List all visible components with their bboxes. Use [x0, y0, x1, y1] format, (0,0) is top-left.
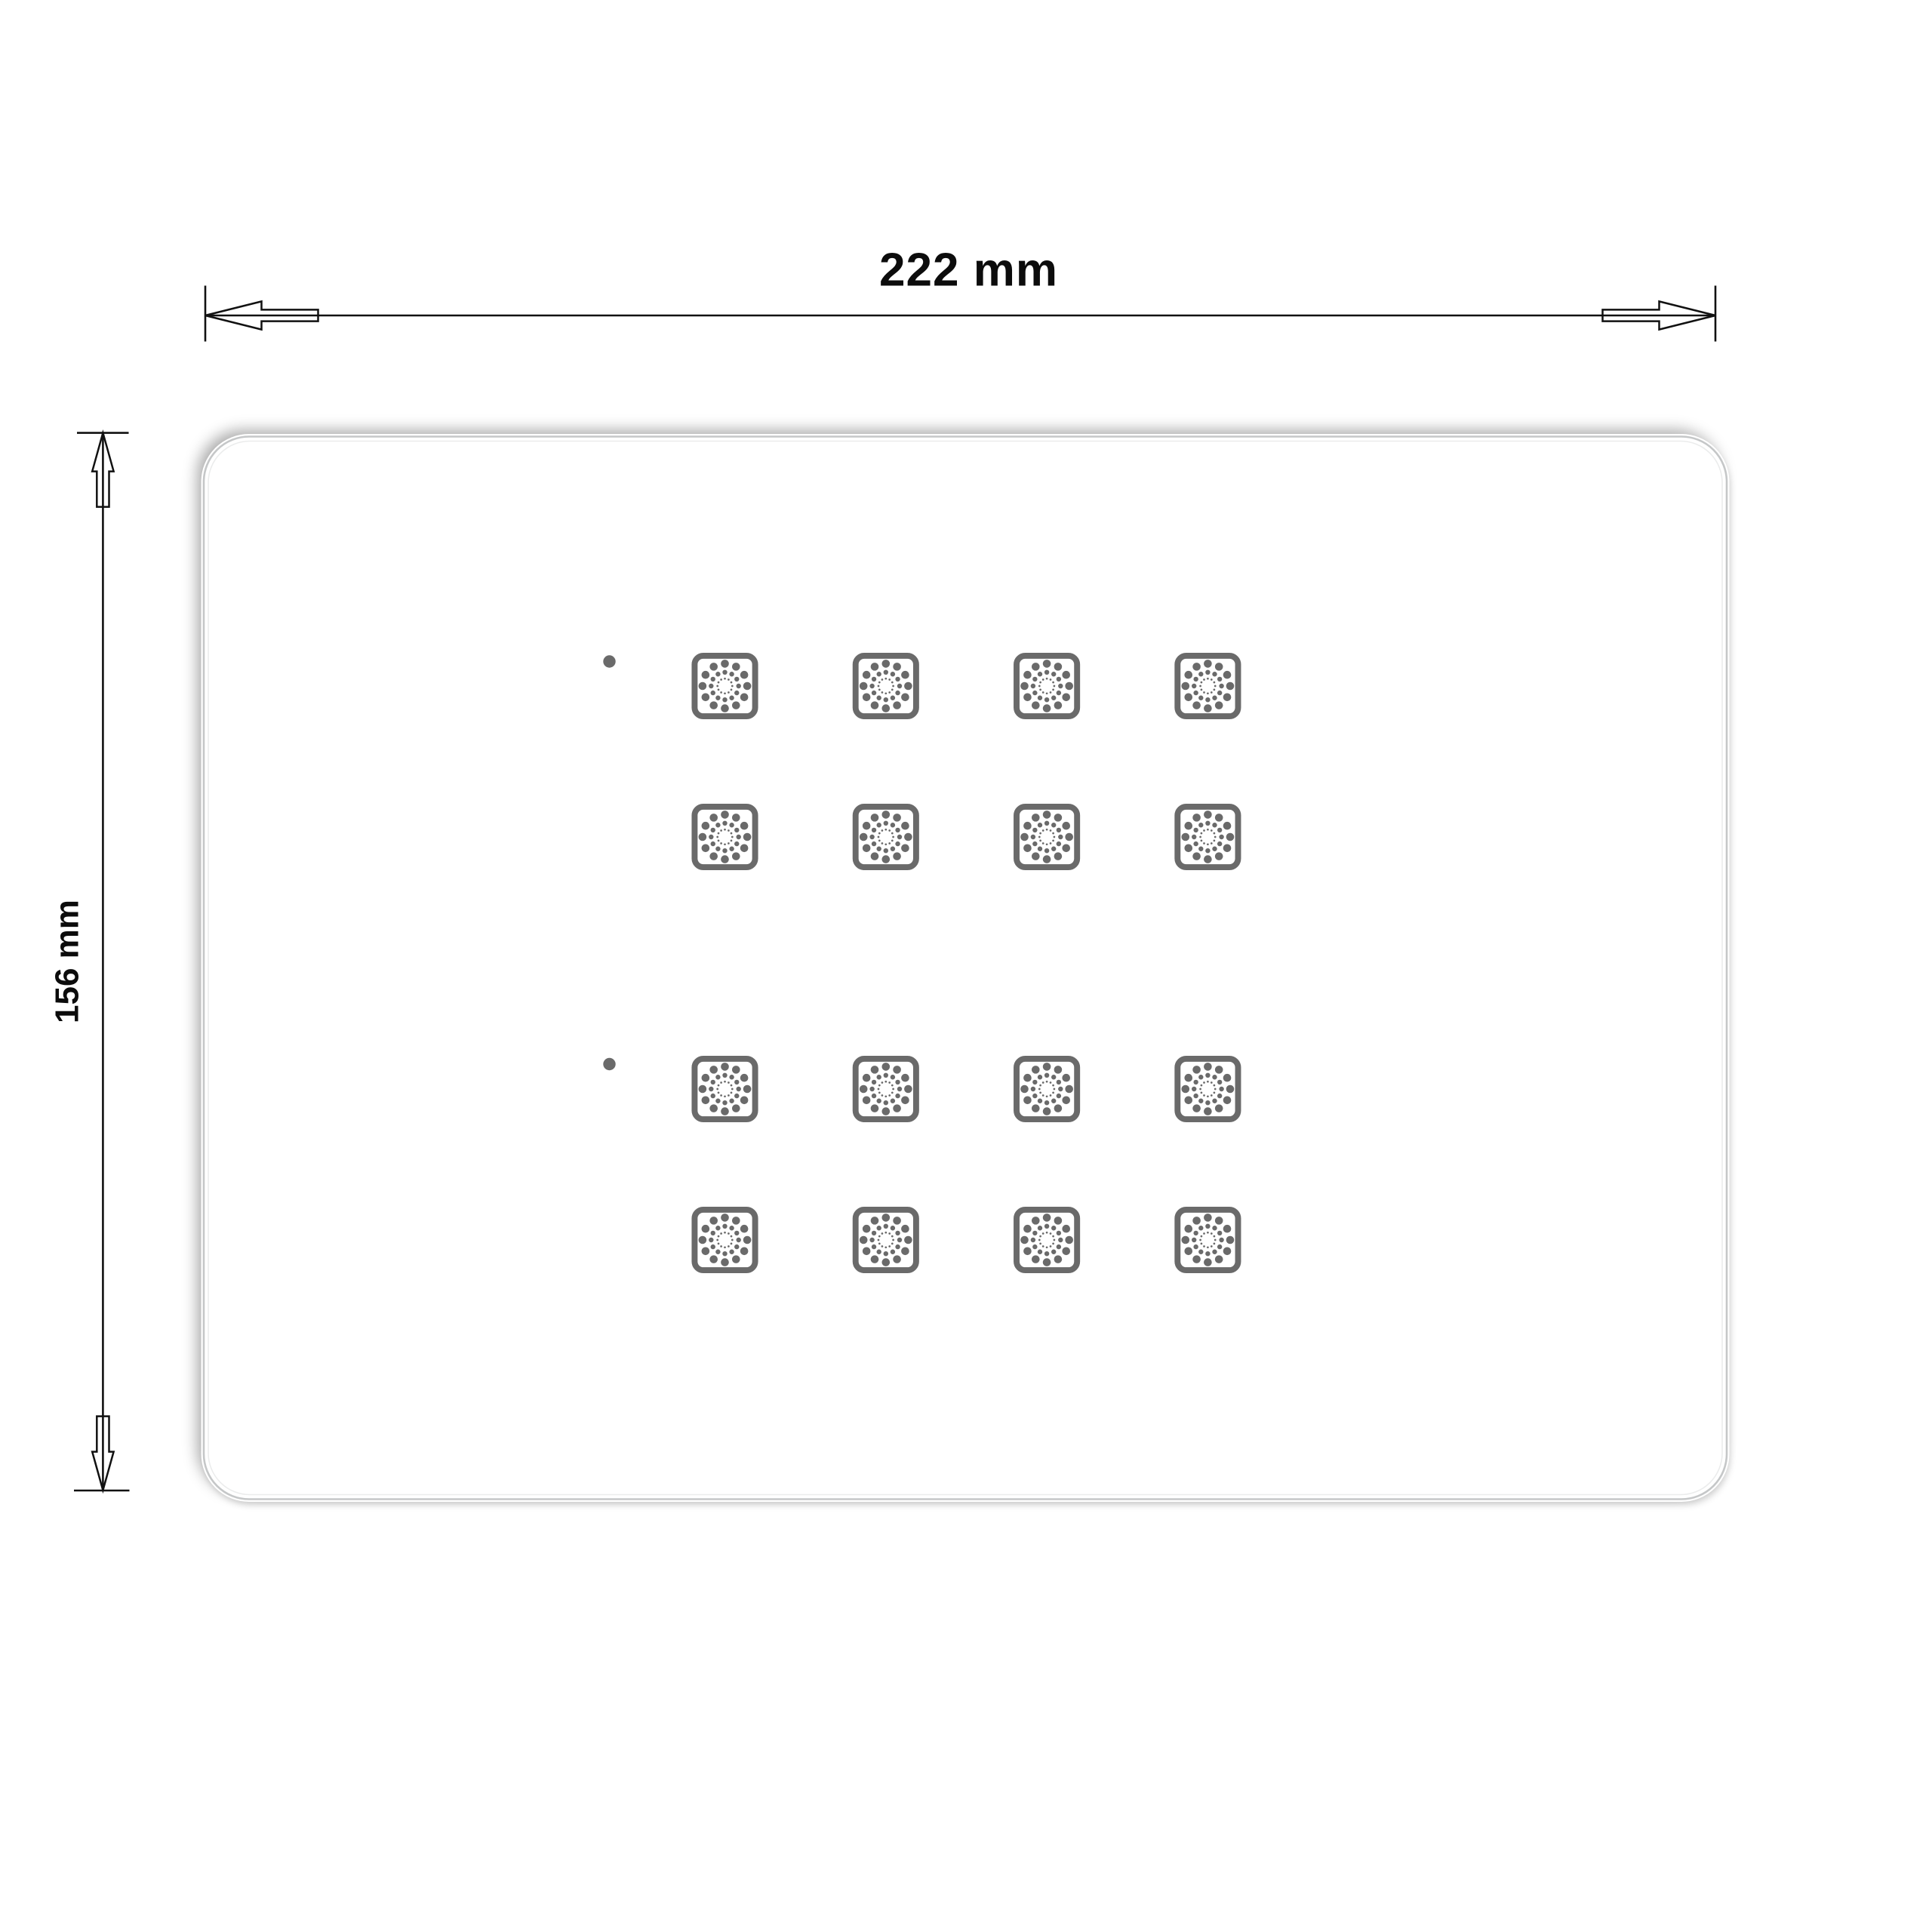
svg-text:222 mm: 222 mm: [879, 245, 1057, 297]
svg-text:156 mm: 156 mm: [49, 900, 86, 1023]
